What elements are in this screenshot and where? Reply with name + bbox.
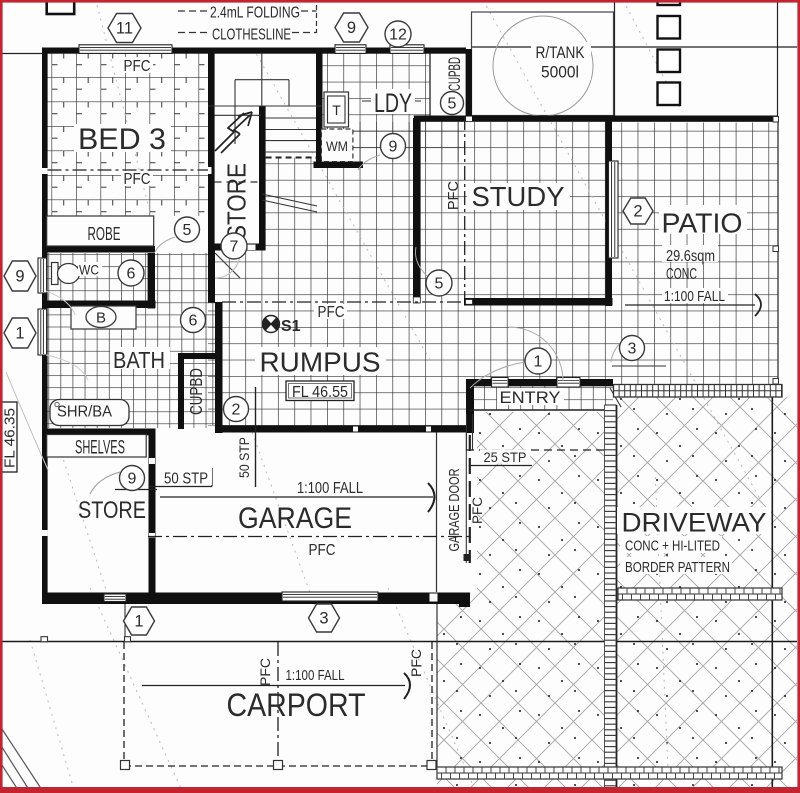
svg-text:GARAGE DOOR: GARAGE DOOR xyxy=(447,469,463,552)
svg-text:PFC: PFC xyxy=(408,649,424,677)
svg-text:R/TANK: R/TANK xyxy=(536,43,586,62)
svg-text:LDY: LDY xyxy=(374,88,412,118)
svg-text:5: 5 xyxy=(183,222,192,239)
svg-text:FL 46.35: FL 46.35 xyxy=(3,408,19,468)
svg-text:WC: WC xyxy=(79,262,99,278)
svg-text:7: 7 xyxy=(230,239,239,256)
svg-text:29.6sqm: 29.6sqm xyxy=(666,248,715,265)
svg-text:B: B xyxy=(96,310,106,327)
svg-text:S1: S1 xyxy=(281,318,301,335)
svg-text:6: 6 xyxy=(189,313,198,330)
svg-text:5: 5 xyxy=(448,96,457,113)
svg-text:PFC: PFC xyxy=(318,304,345,321)
svg-text:5: 5 xyxy=(435,276,444,293)
svg-text:1: 1 xyxy=(534,354,543,371)
svg-text:CUPBD: CUPBD xyxy=(445,57,464,91)
svg-text:9: 9 xyxy=(347,19,356,37)
svg-text:3: 3 xyxy=(319,610,328,628)
svg-text:ROBE: ROBE xyxy=(88,223,121,244)
svg-text:PFC: PFC xyxy=(124,58,151,75)
svg-text:50 STP: 50 STP xyxy=(237,437,252,478)
svg-text:ENTRY: ENTRY xyxy=(500,389,561,407)
svg-text:STORE: STORE xyxy=(78,497,146,524)
svg-text:9: 9 xyxy=(128,471,137,488)
svg-text:5000l: 5000l xyxy=(541,63,579,82)
svg-text:1:100 FALL: 1:100 FALL xyxy=(286,667,345,684)
svg-text:GARAGE: GARAGE xyxy=(238,502,352,535)
svg-text:2.4mL FOLDING: 2.4mL FOLDING xyxy=(210,5,300,22)
svg-text:PFC: PFC xyxy=(446,181,462,210)
svg-text:BED 3: BED 3 xyxy=(78,123,166,156)
svg-text:CARPORT: CARPORT xyxy=(227,687,366,723)
svg-text:9: 9 xyxy=(389,139,398,156)
svg-text:STORE: STORE xyxy=(222,163,252,240)
svg-text:PFC: PFC xyxy=(470,497,485,524)
svg-text:RUMPUS: RUMPUS xyxy=(260,347,381,378)
svg-text:25 STP: 25 STP xyxy=(484,449,527,465)
svg-text:STUDY: STUDY xyxy=(472,181,565,212)
svg-text:BATH: BATH xyxy=(113,347,165,373)
svg-text:BORDER PATTERN: BORDER PATTERN xyxy=(625,559,730,576)
svg-text:PATIO: PATIO xyxy=(662,208,743,239)
svg-text:DRIVEWAY: DRIVEWAY xyxy=(622,508,767,538)
svg-text:1:100 FALL: 1:100 FALL xyxy=(297,480,363,497)
svg-text:6: 6 xyxy=(127,266,136,283)
svg-text:12: 12 xyxy=(389,27,407,44)
svg-text:SHR/BA: SHR/BA xyxy=(57,404,112,421)
svg-text:PFC: PFC xyxy=(309,542,336,559)
svg-text:50 STP: 50 STP xyxy=(164,471,208,488)
svg-text:CONC + HI-LITED: CONC + HI-LITED xyxy=(625,539,720,555)
svg-text:CUPBD: CUPBD xyxy=(186,368,206,415)
svg-text:11: 11 xyxy=(116,20,133,38)
svg-text:1: 1 xyxy=(134,613,143,631)
svg-text:3: 3 xyxy=(628,341,637,358)
svg-text:FL 46.55: FL 46.55 xyxy=(292,384,348,401)
svg-text:WM: WM xyxy=(326,138,348,154)
svg-text:PFC: PFC xyxy=(124,171,151,188)
svg-text:2: 2 xyxy=(633,203,642,221)
svg-text:SHELVES: SHELVES xyxy=(75,437,125,459)
svg-text:1: 1 xyxy=(15,325,24,343)
svg-text:1:100 FALL: 1:100 FALL xyxy=(664,288,725,305)
svg-text:CLOTHESLINE: CLOTHESLINE xyxy=(212,27,291,44)
svg-text:PFC: PFC xyxy=(257,658,273,686)
svg-text:9: 9 xyxy=(15,268,24,286)
svg-text:2: 2 xyxy=(232,402,241,419)
svg-text:T: T xyxy=(332,102,341,118)
svg-text:CONC: CONC xyxy=(666,266,697,283)
